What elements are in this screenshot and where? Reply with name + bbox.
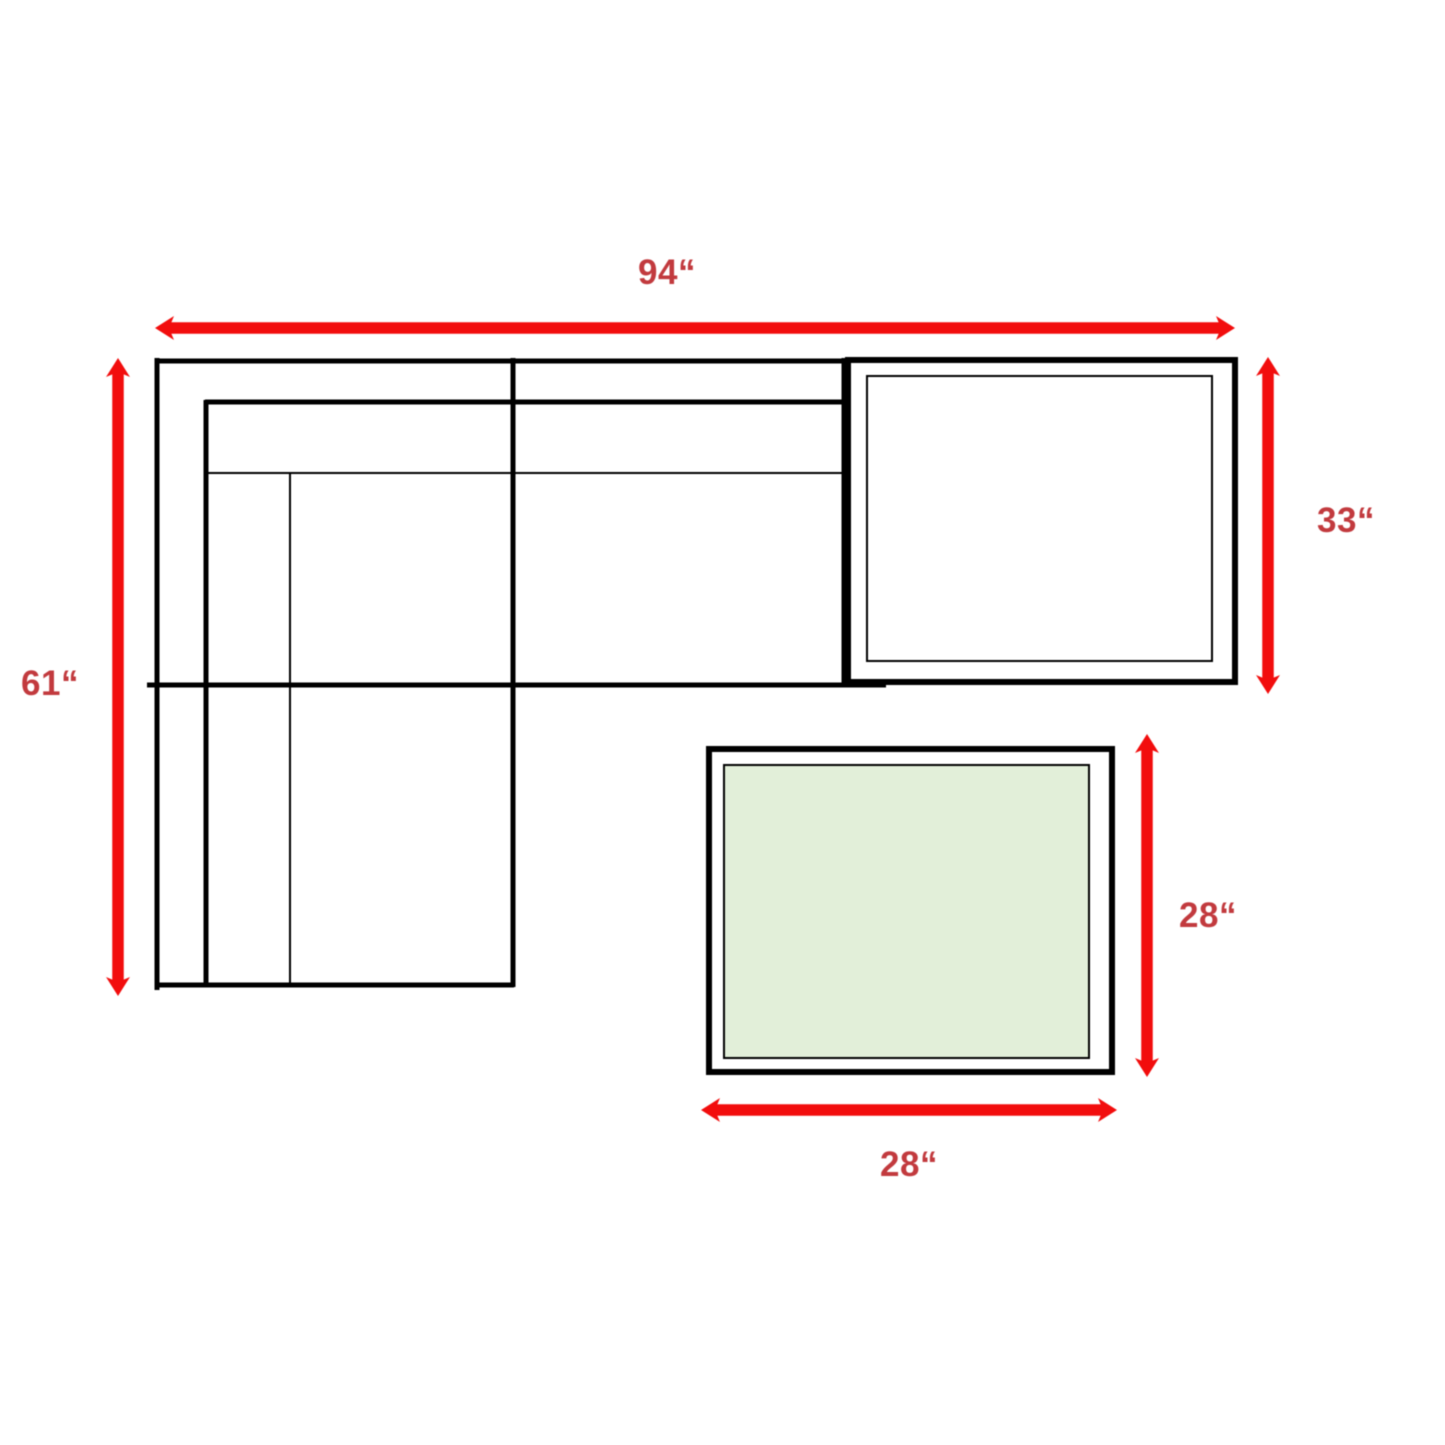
svg-text:28“: 28“	[880, 1145, 938, 1184]
svg-text:33“: 33“	[1317, 501, 1375, 540]
svg-text:28“: 28“	[1179, 896, 1237, 935]
svg-text:94“: 94“	[638, 253, 696, 292]
svg-text:61“: 61“	[21, 664, 79, 703]
